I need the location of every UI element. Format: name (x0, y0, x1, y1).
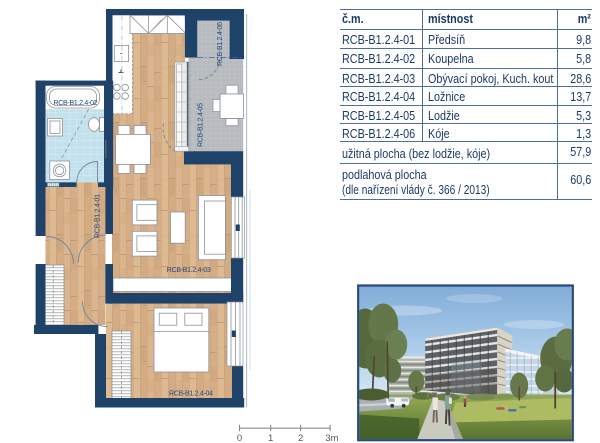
svg-text:RCB-B1.2.4-05: RCB-B1.2.4-05 (198, 103, 205, 147)
svg-text:0: 0 (237, 433, 242, 443)
svg-text:RCB-B1.2.4-03: RCB-B1.2.4-03 (167, 267, 211, 274)
svg-text:RCB-B1.2.4-01: RCB-B1.2.4-01 (95, 194, 102, 238)
svg-text:2: 2 (298, 433, 303, 443)
svg-text:RCB-B1.2.4-04: RCB-B1.2.4-04 (169, 391, 213, 398)
svg-text:3m: 3m (325, 433, 338, 443)
svg-text:RCB-B1.2.4-06: RCB-B1.2.4-06 (217, 22, 224, 66)
svg-text:1: 1 (268, 433, 273, 443)
svg-text:RCB-B1.2.4-02: RCB-B1.2.4-02 (54, 100, 98, 107)
